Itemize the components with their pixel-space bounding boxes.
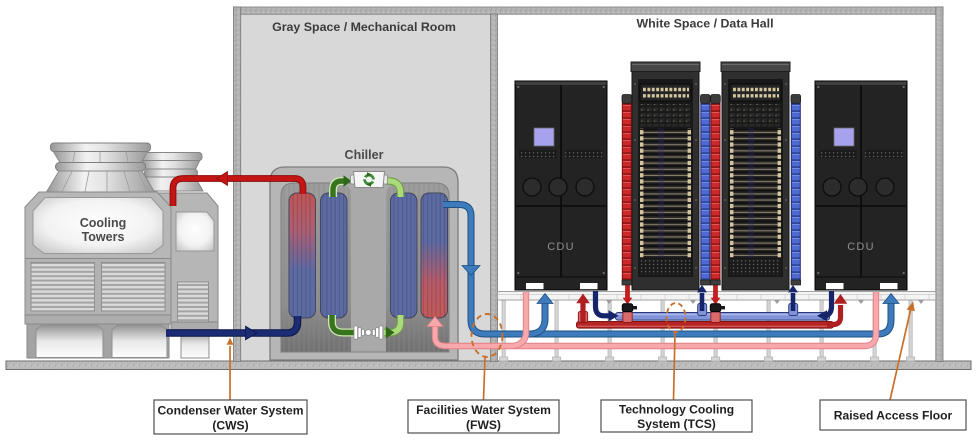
- svg-text:Chiller: Chiller: [345, 148, 384, 162]
- svg-text:CDU: CDU: [547, 241, 574, 253]
- svg-text:System (TCS): System (TCS): [637, 417, 716, 431]
- svg-text:Cooling: Cooling: [80, 216, 127, 230]
- svg-text:(CWS): (CWS): [212, 419, 248, 433]
- svg-text:CDU: CDU: [847, 241, 874, 253]
- svg-text:Condenser Water System: Condenser Water System: [157, 404, 303, 418]
- svg-text:White Space / Data Hall: White Space / Data Hall: [636, 17, 773, 31]
- svg-text:Technology Cooling: Technology Cooling: [619, 403, 734, 417]
- svg-text:Facilities Water System: Facilities Water System: [416, 403, 551, 417]
- svg-text:(FWS): (FWS): [466, 418, 501, 432]
- svg-text:Towers: Towers: [82, 230, 125, 244]
- svg-text:Raised Access Floor: Raised Access Floor: [834, 409, 953, 423]
- svg-text:Gray Space / Mechanical Room: Gray Space / Mechanical Room: [272, 20, 456, 34]
